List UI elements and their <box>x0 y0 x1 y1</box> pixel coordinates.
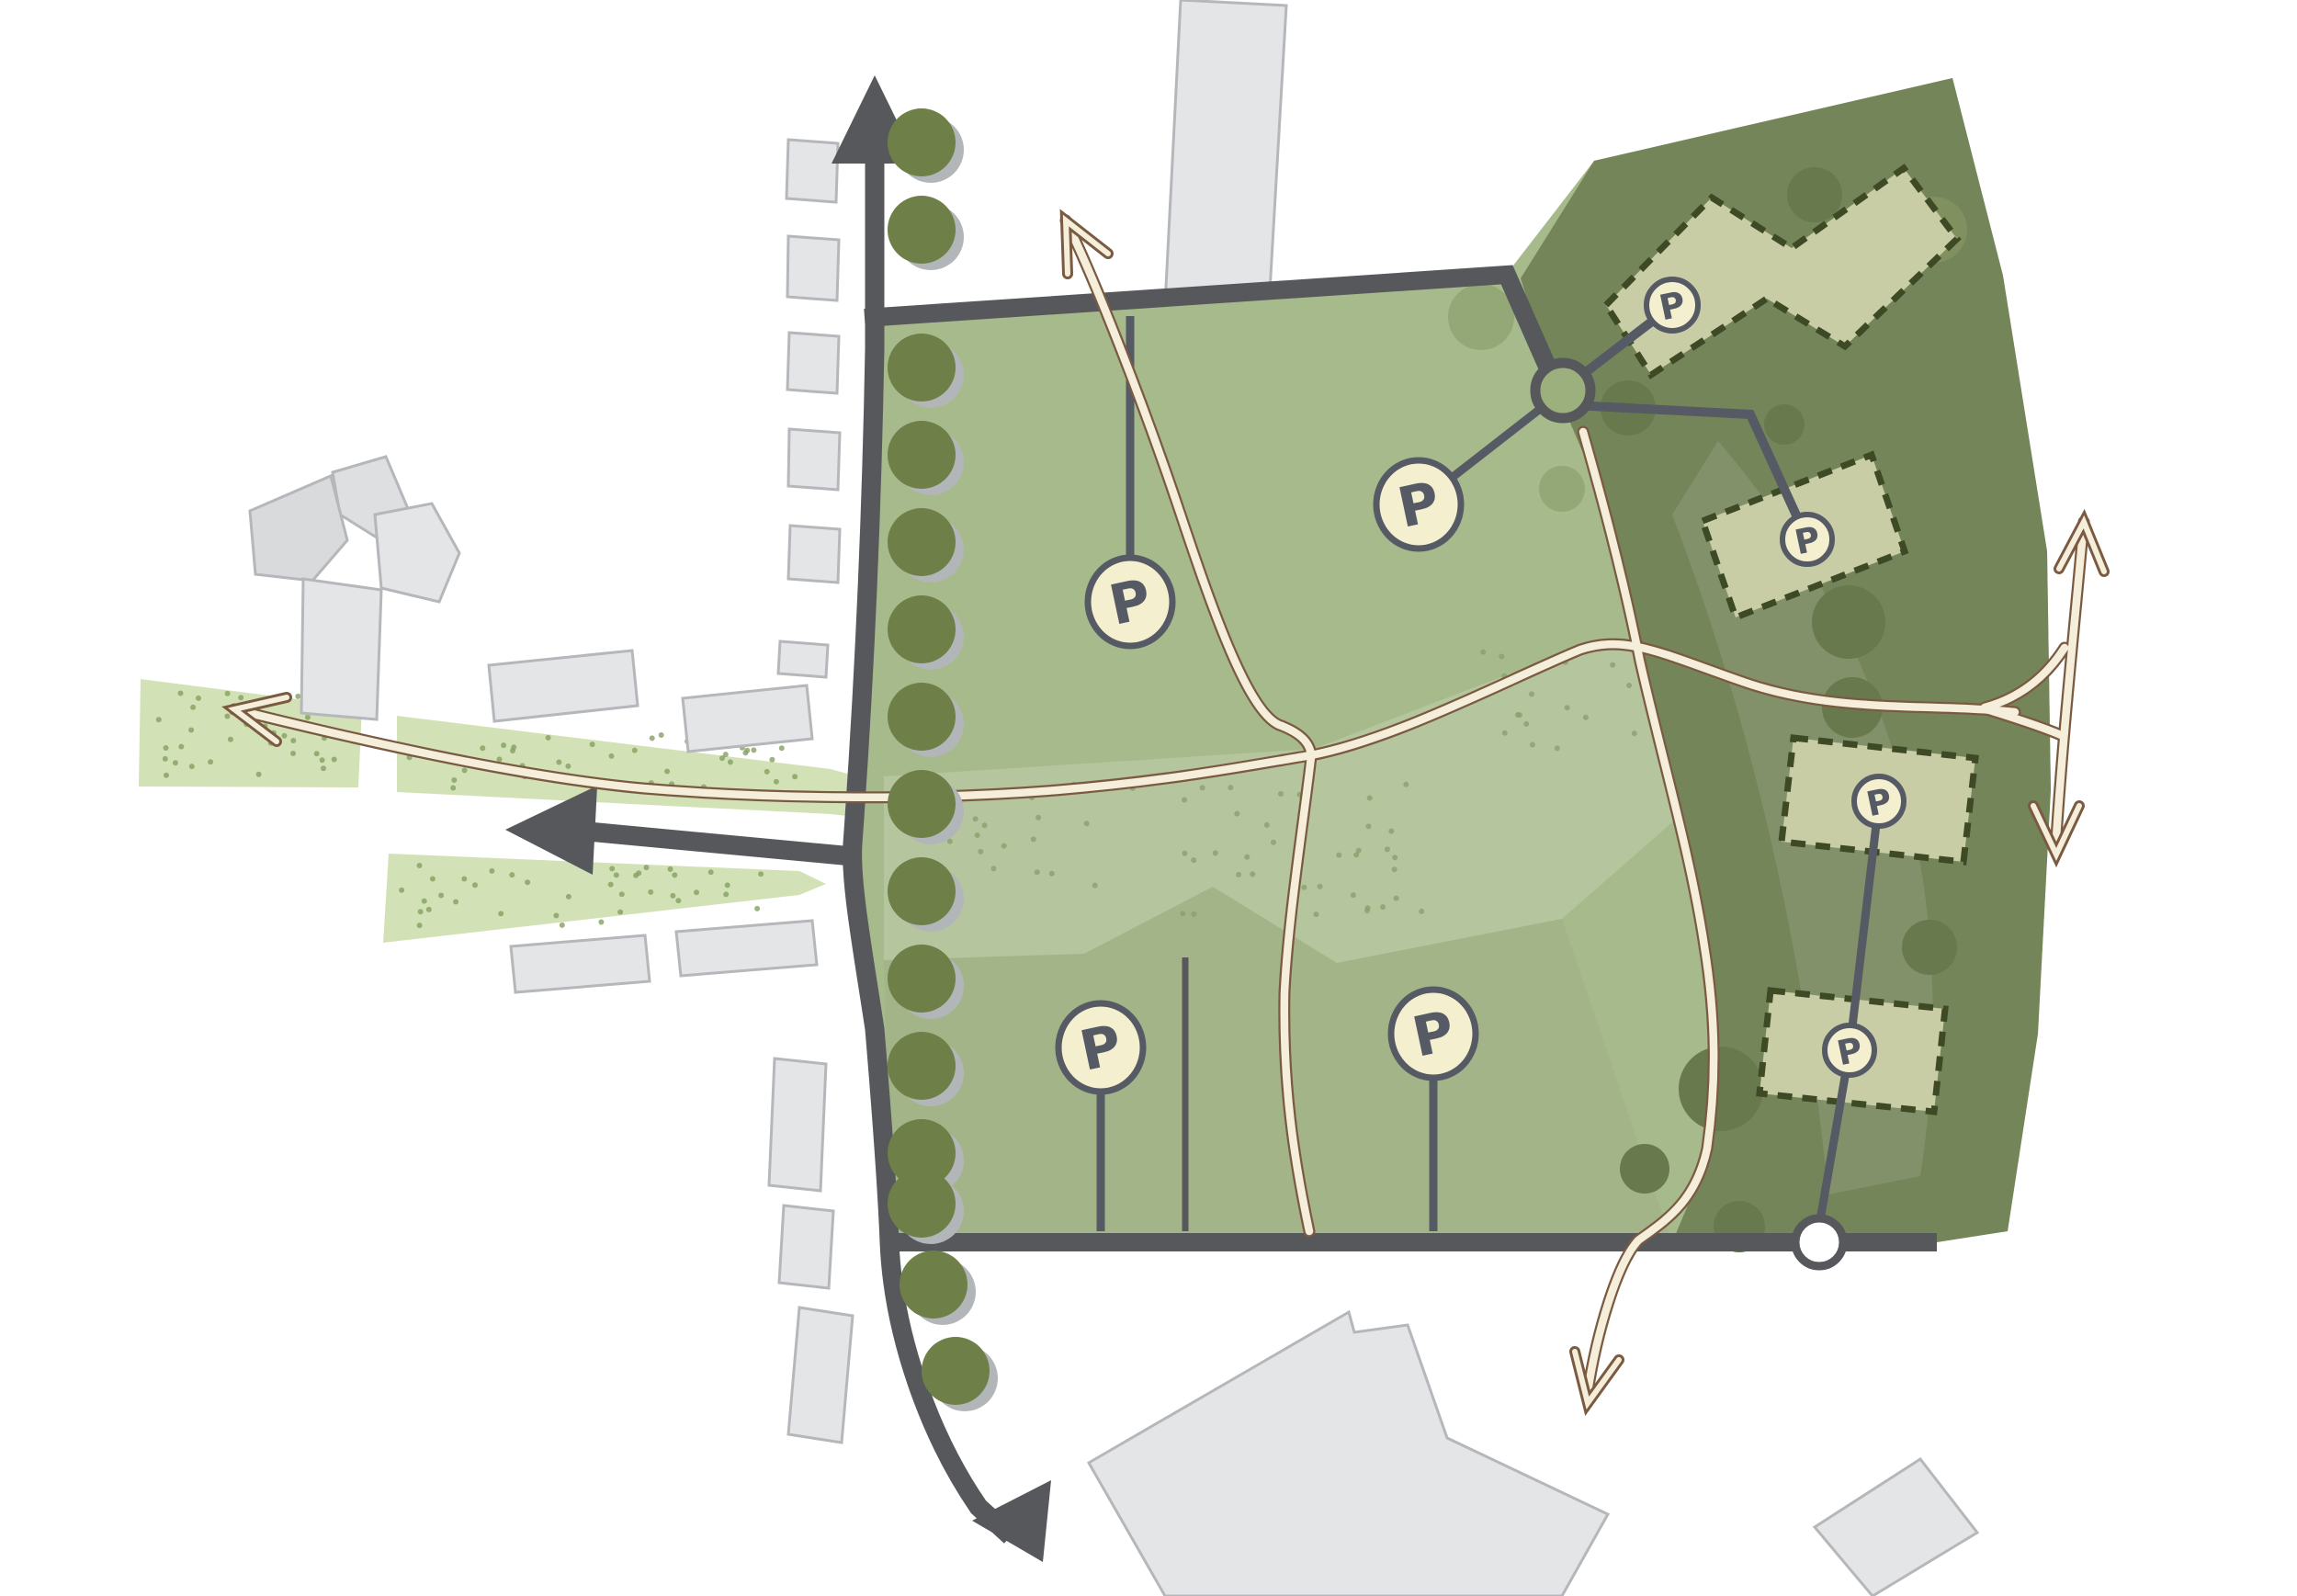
speckle-dot <box>256 772 262 777</box>
speckle-dot <box>598 920 604 925</box>
speckle-dot <box>451 777 457 783</box>
speckle-dot <box>1392 855 1397 860</box>
speckle-dot <box>462 767 468 773</box>
speckle-dot <box>675 898 681 903</box>
street-tree-icon <box>888 1032 956 1100</box>
street-tree-icon <box>888 857 956 925</box>
speckle-dot <box>1392 866 1397 872</box>
speckle-dot <box>1403 782 1409 787</box>
street-tree-icon <box>888 1170 956 1238</box>
canopy-icon <box>1902 920 1957 975</box>
speckle-dot <box>430 877 436 882</box>
speckle-dot <box>525 879 530 885</box>
speckle-dot <box>609 753 615 759</box>
speckle-dot <box>614 872 619 877</box>
speckle-dot <box>723 891 729 897</box>
speckle-dot <box>1264 822 1270 828</box>
speckle-dot <box>1314 911 1319 917</box>
speckle-dot <box>975 832 980 838</box>
speckle-dot <box>758 871 764 877</box>
site-plan-drawing: P P P P P P P P <box>0 0 2297 1596</box>
speckle-dot <box>619 891 625 897</box>
existing-building <box>788 526 840 583</box>
speckle-dot <box>1555 745 1560 751</box>
speckle-dot <box>422 899 427 904</box>
canopy-icon <box>1764 404 1805 445</box>
speckle-dot <box>305 715 311 720</box>
speckle-dot <box>417 863 423 868</box>
street-tree-icon <box>888 683 956 751</box>
parking-badge-small-woodland-east: P <box>1782 515 1832 564</box>
site-plan-canvas: P P P P P P P P <box>0 0 2297 1596</box>
speckle-dot <box>1180 911 1185 916</box>
speckle-dot <box>668 866 673 872</box>
speckle-dot <box>751 747 756 753</box>
speckle-dot <box>173 760 178 765</box>
speckle-dot <box>290 738 296 743</box>
street-tree-icon <box>888 108 956 176</box>
speckle-dot <box>1385 846 1390 852</box>
speckle-dot <box>225 691 231 696</box>
speckle-dot <box>163 756 168 762</box>
speckle-dot <box>1517 712 1522 718</box>
existing-building <box>779 1205 833 1288</box>
speckle-dot <box>1031 836 1036 842</box>
existing-building <box>788 429 840 490</box>
speckle-dot <box>664 769 670 775</box>
speckle-dot <box>1301 885 1307 890</box>
roundabout-node-icon <box>1535 363 1590 418</box>
west-branch-road <box>588 832 853 856</box>
existing-building <box>1815 1459 1977 1596</box>
speckle-dot <box>1366 823 1372 829</box>
speckle-dot <box>636 870 641 876</box>
speckle-dot <box>546 735 551 741</box>
street-tree-icon <box>922 1337 990 1405</box>
speckle-dot <box>1234 811 1239 817</box>
street-tree-icon <box>888 945 956 1013</box>
street-tree-icon <box>888 595 956 663</box>
speckle-dot <box>196 696 201 701</box>
speckle-dot <box>1035 869 1040 875</box>
speckle-dot <box>511 744 516 750</box>
speckle-dot <box>1191 857 1196 863</box>
speckle-dot <box>1499 654 1504 660</box>
speckle-dot <box>632 748 638 753</box>
speckle-dot <box>399 888 404 893</box>
speckle-dot <box>295 694 300 699</box>
speckle-dot <box>282 733 288 739</box>
speckle-dot <box>708 869 714 875</box>
existing-building-large <box>1089 1312 1608 1596</box>
speckle-dot <box>590 741 595 747</box>
speckle-dot <box>560 923 565 928</box>
speckle-dot <box>509 872 515 877</box>
street-tree-icon <box>888 508 956 576</box>
speckle-dot <box>156 717 162 722</box>
parking-badge-small-woodland-center: P <box>1854 776 1904 826</box>
existing-building <box>786 140 838 202</box>
canopy-icon <box>1812 585 1885 659</box>
canopy-icon <box>1539 466 1585 512</box>
speckle-dot <box>332 757 337 763</box>
speckle-dot <box>1610 662 1615 668</box>
speckle-dot <box>694 889 699 895</box>
existing-building <box>787 333 839 393</box>
speckle-dot <box>1278 791 1284 797</box>
speckle-dot <box>501 742 506 748</box>
speckle-dot <box>320 757 325 763</box>
speckle-dot <box>659 732 664 738</box>
speckle-dot <box>1365 905 1371 911</box>
existing-building <box>683 685 812 752</box>
speckle-dot <box>1250 871 1255 877</box>
speckle-dot <box>670 893 675 899</box>
speckle-dot <box>1583 715 1589 720</box>
speckle-dot <box>1502 730 1508 736</box>
existing-building-pinwheel-lobe <box>375 504 459 602</box>
existing-building <box>787 236 839 300</box>
speckle-dot <box>1367 796 1373 801</box>
existing-building <box>769 1058 826 1191</box>
speckle-dot <box>1351 892 1356 898</box>
canopy-icon <box>1620 1144 1669 1194</box>
speckle-dot <box>725 882 730 888</box>
speckle-dot <box>774 779 779 785</box>
street-tree-icon <box>888 334 956 402</box>
canopy-icon <box>1679 1047 1763 1131</box>
speckle-dot <box>461 877 467 882</box>
speckle-dot <box>1318 884 1323 889</box>
existing-building-pinwheel-lobe <box>301 579 381 719</box>
speckle-dot <box>1419 909 1424 914</box>
speckle-dot <box>728 759 733 764</box>
speckle-dot <box>224 714 230 719</box>
speckle-dot <box>1049 871 1055 877</box>
speckle-dot <box>1336 853 1341 858</box>
speckle-dot <box>1213 850 1218 855</box>
speckle-dot <box>644 865 650 870</box>
speckle-dot <box>426 907 432 912</box>
speckle-dot <box>1388 829 1394 834</box>
speckle-dot <box>617 910 623 915</box>
speckle-dot <box>609 866 615 871</box>
speckle-dot <box>723 752 729 757</box>
speckle-dot <box>779 745 785 751</box>
existing-building <box>1165 0 1286 323</box>
speckle-dot <box>1523 721 1529 727</box>
road-arrow-down-icon <box>972 1480 1051 1562</box>
parking-badge-small-woodland-north: P <box>1646 279 1698 331</box>
speckle-dot <box>672 872 677 877</box>
speckle-dot <box>764 769 770 775</box>
street-tree-icon <box>888 770 956 838</box>
speckle-dot <box>1529 691 1534 696</box>
speckle-dot <box>565 764 571 769</box>
street-tree-icon <box>888 421 956 489</box>
speckle-dot <box>792 774 798 779</box>
speckle-dot <box>189 764 195 769</box>
speckle-dot <box>188 728 194 733</box>
speckle-dot <box>290 751 296 756</box>
existing-building <box>489 651 638 721</box>
speckle-dot <box>1380 904 1386 910</box>
parking-badge-large-northwest: P <box>1088 558 1172 646</box>
speckle-dot <box>1084 821 1090 826</box>
speckle-dot <box>973 816 979 821</box>
speckle-dot <box>556 760 561 765</box>
parking-badge-large-southwest: P <box>1058 1003 1143 1092</box>
street-tree-icon <box>888 196 956 264</box>
speckle-dot <box>314 751 320 756</box>
speckle-dot <box>648 889 653 895</box>
speckle-dot <box>650 735 655 741</box>
speckle-dot <box>1530 742 1535 748</box>
parking-badge-large-north-center: P <box>1376 460 1461 549</box>
street-tree-icon <box>900 1251 967 1319</box>
existing-building <box>788 1307 853 1443</box>
speckle-dot <box>608 882 614 888</box>
speckle-dot <box>418 909 424 914</box>
connection-node-icon <box>1795 1218 1843 1266</box>
speckle-dot <box>417 923 423 928</box>
speckle-dot <box>1182 851 1187 856</box>
speckle-dot <box>742 750 748 755</box>
existing-building-pinwheel-lobe <box>250 476 347 581</box>
speckle-dot <box>438 893 444 899</box>
speckle-dot <box>450 786 456 791</box>
speckle-dot <box>164 745 169 751</box>
speckle-dot <box>1632 730 1637 736</box>
speckle-dot <box>1565 705 1570 710</box>
speckle-dot <box>489 868 494 874</box>
speckle-dot <box>990 866 996 871</box>
speckle-dot <box>498 911 504 916</box>
speckle-dot <box>321 765 326 771</box>
speckle-dot <box>978 849 983 855</box>
existing-building <box>778 641 828 677</box>
speckle-dot <box>1480 650 1486 655</box>
speckle-dot <box>1035 815 1041 821</box>
canopy-icon <box>1448 284 1514 350</box>
speckle-dot <box>754 906 760 911</box>
speckle-dot <box>553 913 559 919</box>
speckle-dot <box>982 822 988 828</box>
speckle-dot <box>1394 896 1399 901</box>
speckle-dot <box>453 900 458 905</box>
speckle-dot <box>1626 683 1632 688</box>
parking-badge-large-south-center: P <box>1391 990 1476 1078</box>
speckle-dot <box>1001 843 1007 849</box>
speckle-dot <box>238 695 243 700</box>
existing-building <box>511 935 650 992</box>
parking-badge-small-woodland-south: P <box>1825 1025 1874 1075</box>
speckle-dot <box>190 705 196 710</box>
speckle-dot <box>1244 855 1250 860</box>
speckle-dot <box>566 894 571 900</box>
speckle-dot <box>480 745 485 751</box>
speckle-dot <box>1356 848 1362 854</box>
speckle-dot <box>178 744 184 750</box>
speckle-dot <box>178 691 184 696</box>
existing-building <box>676 921 817 976</box>
speckle-dot <box>1271 840 1276 845</box>
speckle-dot <box>164 773 169 778</box>
speckle-dot <box>472 882 478 888</box>
speckle-dot <box>1228 785 1233 790</box>
speckle-dot <box>1192 911 1197 917</box>
speckle-dot <box>1182 798 1187 803</box>
speckle-dot <box>769 757 775 763</box>
speckle-dot <box>1200 785 1205 790</box>
speckle-dot <box>208 759 213 764</box>
speckle-dot <box>1092 883 1098 889</box>
speckle-dot <box>228 737 233 742</box>
speckle-dot <box>1236 872 1241 877</box>
